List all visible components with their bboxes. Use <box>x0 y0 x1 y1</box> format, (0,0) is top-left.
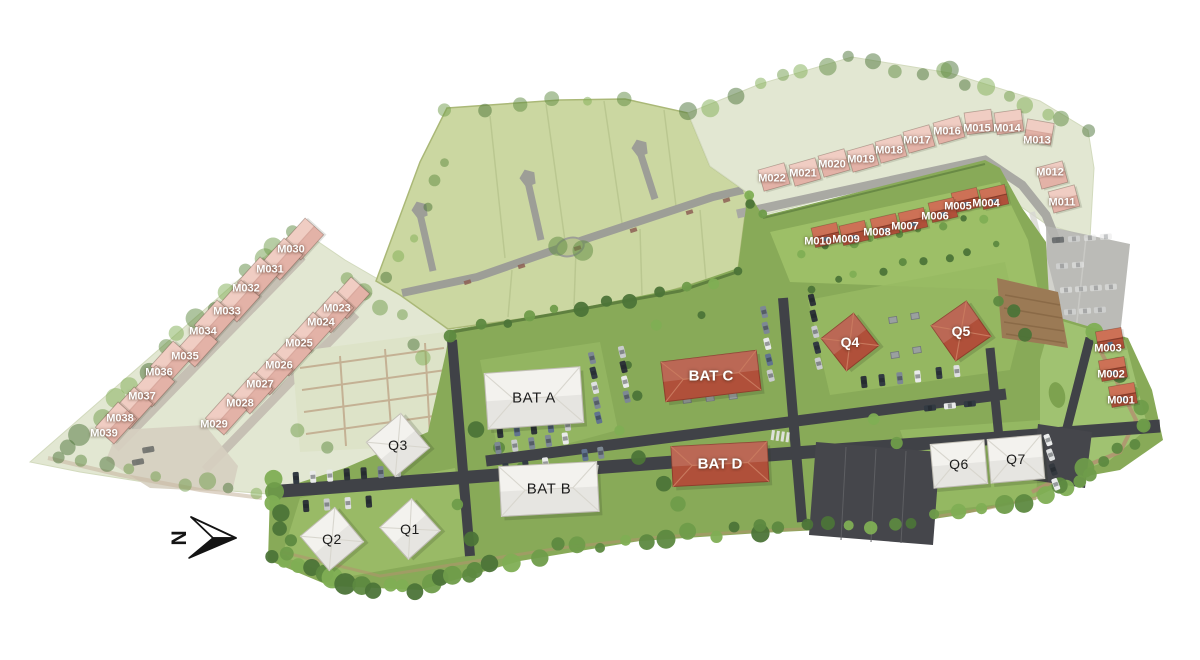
label-m021: M021 <box>789 169 817 180</box>
label-m010: M010 <box>804 237 832 248</box>
label-m034: M034 <box>189 327 217 338</box>
label-q2: Q2 <box>322 532 342 546</box>
label-m028: M028 <box>226 399 254 410</box>
label-m031: M031 <box>256 265 284 276</box>
label-bat-c: BAT C <box>689 369 734 384</box>
label-q6: Q6 <box>949 457 969 471</box>
label-m032: M032 <box>232 284 260 295</box>
label-m011: M011 <box>1049 198 1076 209</box>
label-bat-b: BAT B <box>527 482 571 497</box>
label-q5: Q5 <box>952 324 971 338</box>
label-m037: M037 <box>128 392 156 403</box>
label-m014: M014 <box>993 124 1021 135</box>
label-m030: M030 <box>277 245 305 256</box>
label-m023: M023 <box>323 304 351 315</box>
label-m012: M012 <box>1036 168 1064 179</box>
label-m029: M029 <box>200 420 228 431</box>
label-m015: M015 <box>963 124 991 135</box>
label-m004: M004 <box>972 199 1000 210</box>
label-m001: M001 <box>1107 396 1135 407</box>
label-q7: Q7 <box>1006 452 1026 466</box>
label-m003: M003 <box>1094 344 1122 355</box>
label-m019: M019 <box>847 155 875 166</box>
label-m026: M026 <box>265 361 293 372</box>
label-m033: M033 <box>213 307 241 318</box>
label-m016: M016 <box>933 127 961 138</box>
label-m017: M017 <box>903 136 931 147</box>
label-q1: Q1 <box>400 522 420 536</box>
label-bat-d: BAT D <box>698 457 743 472</box>
label-m013: M013 <box>1023 136 1051 147</box>
label-m007: M007 <box>891 222 919 233</box>
label-m038: M038 <box>106 414 134 425</box>
label-m018: M018 <box>875 146 903 157</box>
label-m035: M035 <box>171 352 199 363</box>
label-m022: M022 <box>758 174 786 185</box>
label-m039: M039 <box>90 429 118 440</box>
site-plan-canvas: N M001M002M003M004M005M006M007M008M009M0… <box>0 0 1200 660</box>
label-q3: Q3 <box>388 438 408 452</box>
label-m036: M036 <box>145 368 173 379</box>
label-m020: M020 <box>818 160 846 171</box>
label-m027: M027 <box>246 380 274 391</box>
label-m002: M002 <box>1097 370 1125 381</box>
label-m009: M009 <box>832 235 860 246</box>
label-q4: Q4 <box>841 335 860 349</box>
labels-layer: M001M002M003M004M005M006M007M008M009M010… <box>0 0 1200 660</box>
label-m024: M024 <box>307 318 335 329</box>
label-m025: M025 <box>285 339 313 350</box>
label-m006: M006 <box>921 212 949 223</box>
label-m008: M008 <box>863 228 891 239</box>
label-bat-a: BAT A <box>512 391 556 406</box>
